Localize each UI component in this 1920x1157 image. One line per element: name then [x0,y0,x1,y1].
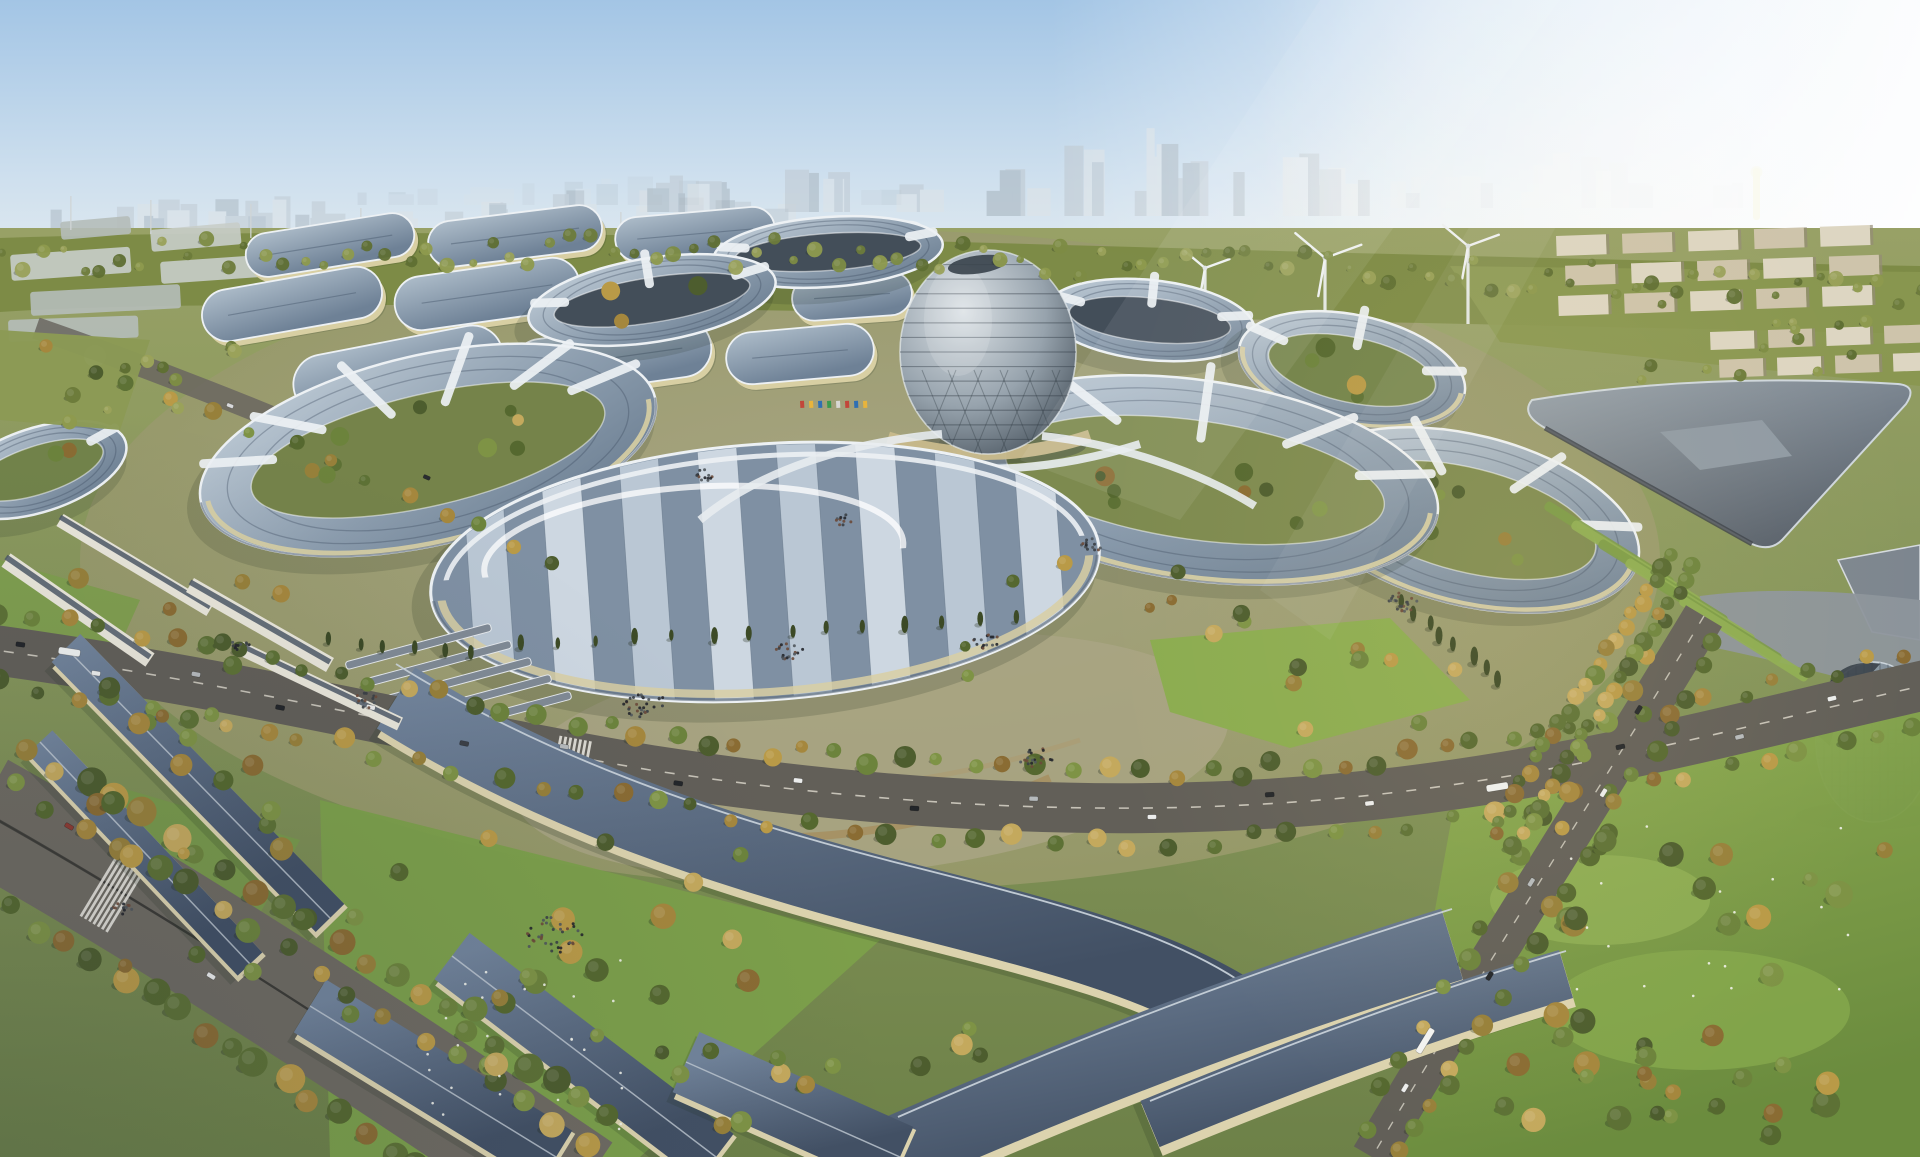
aerial-expo-rendering: Aerial rendering of a circular world-exp… [0,0,1920,1157]
car [910,806,919,811]
car [1029,796,1038,801]
